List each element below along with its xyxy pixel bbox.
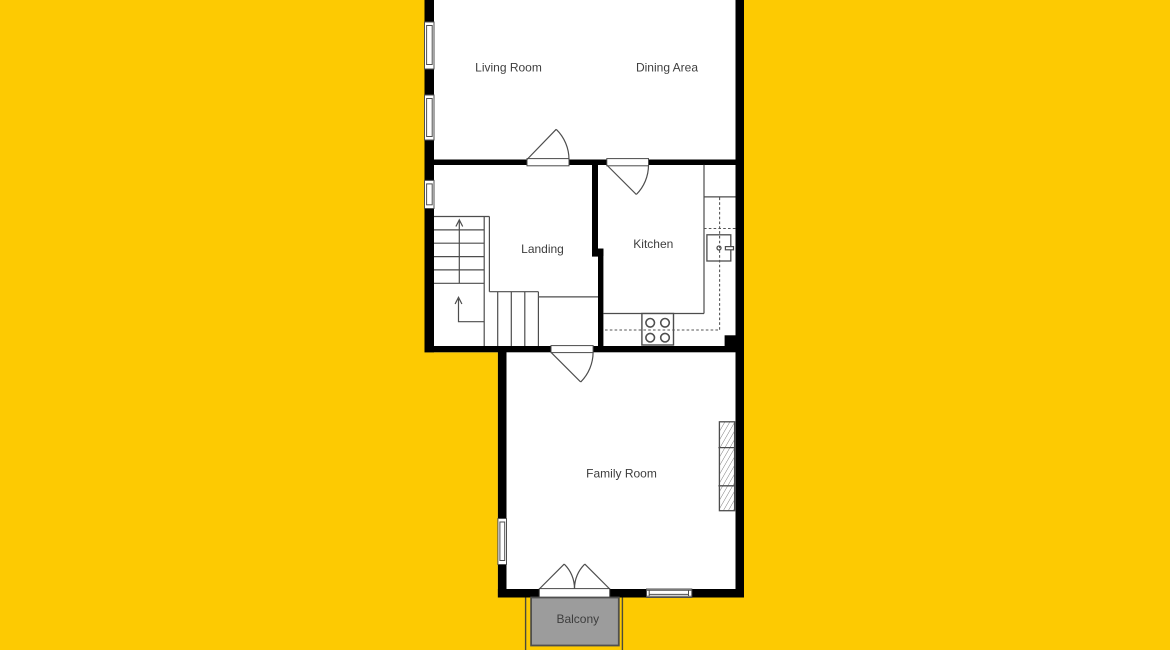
- svg-text:Kitchen: Kitchen: [633, 237, 673, 251]
- svg-text:Landing: Landing: [521, 242, 564, 256]
- svg-text:Family Room: Family Room: [586, 467, 657, 481]
- svg-text:Living Room: Living Room: [475, 61, 542, 75]
- svg-text:Dining Area: Dining Area: [636, 61, 698, 75]
- svg-text:Balcony: Balcony: [556, 612, 599, 626]
